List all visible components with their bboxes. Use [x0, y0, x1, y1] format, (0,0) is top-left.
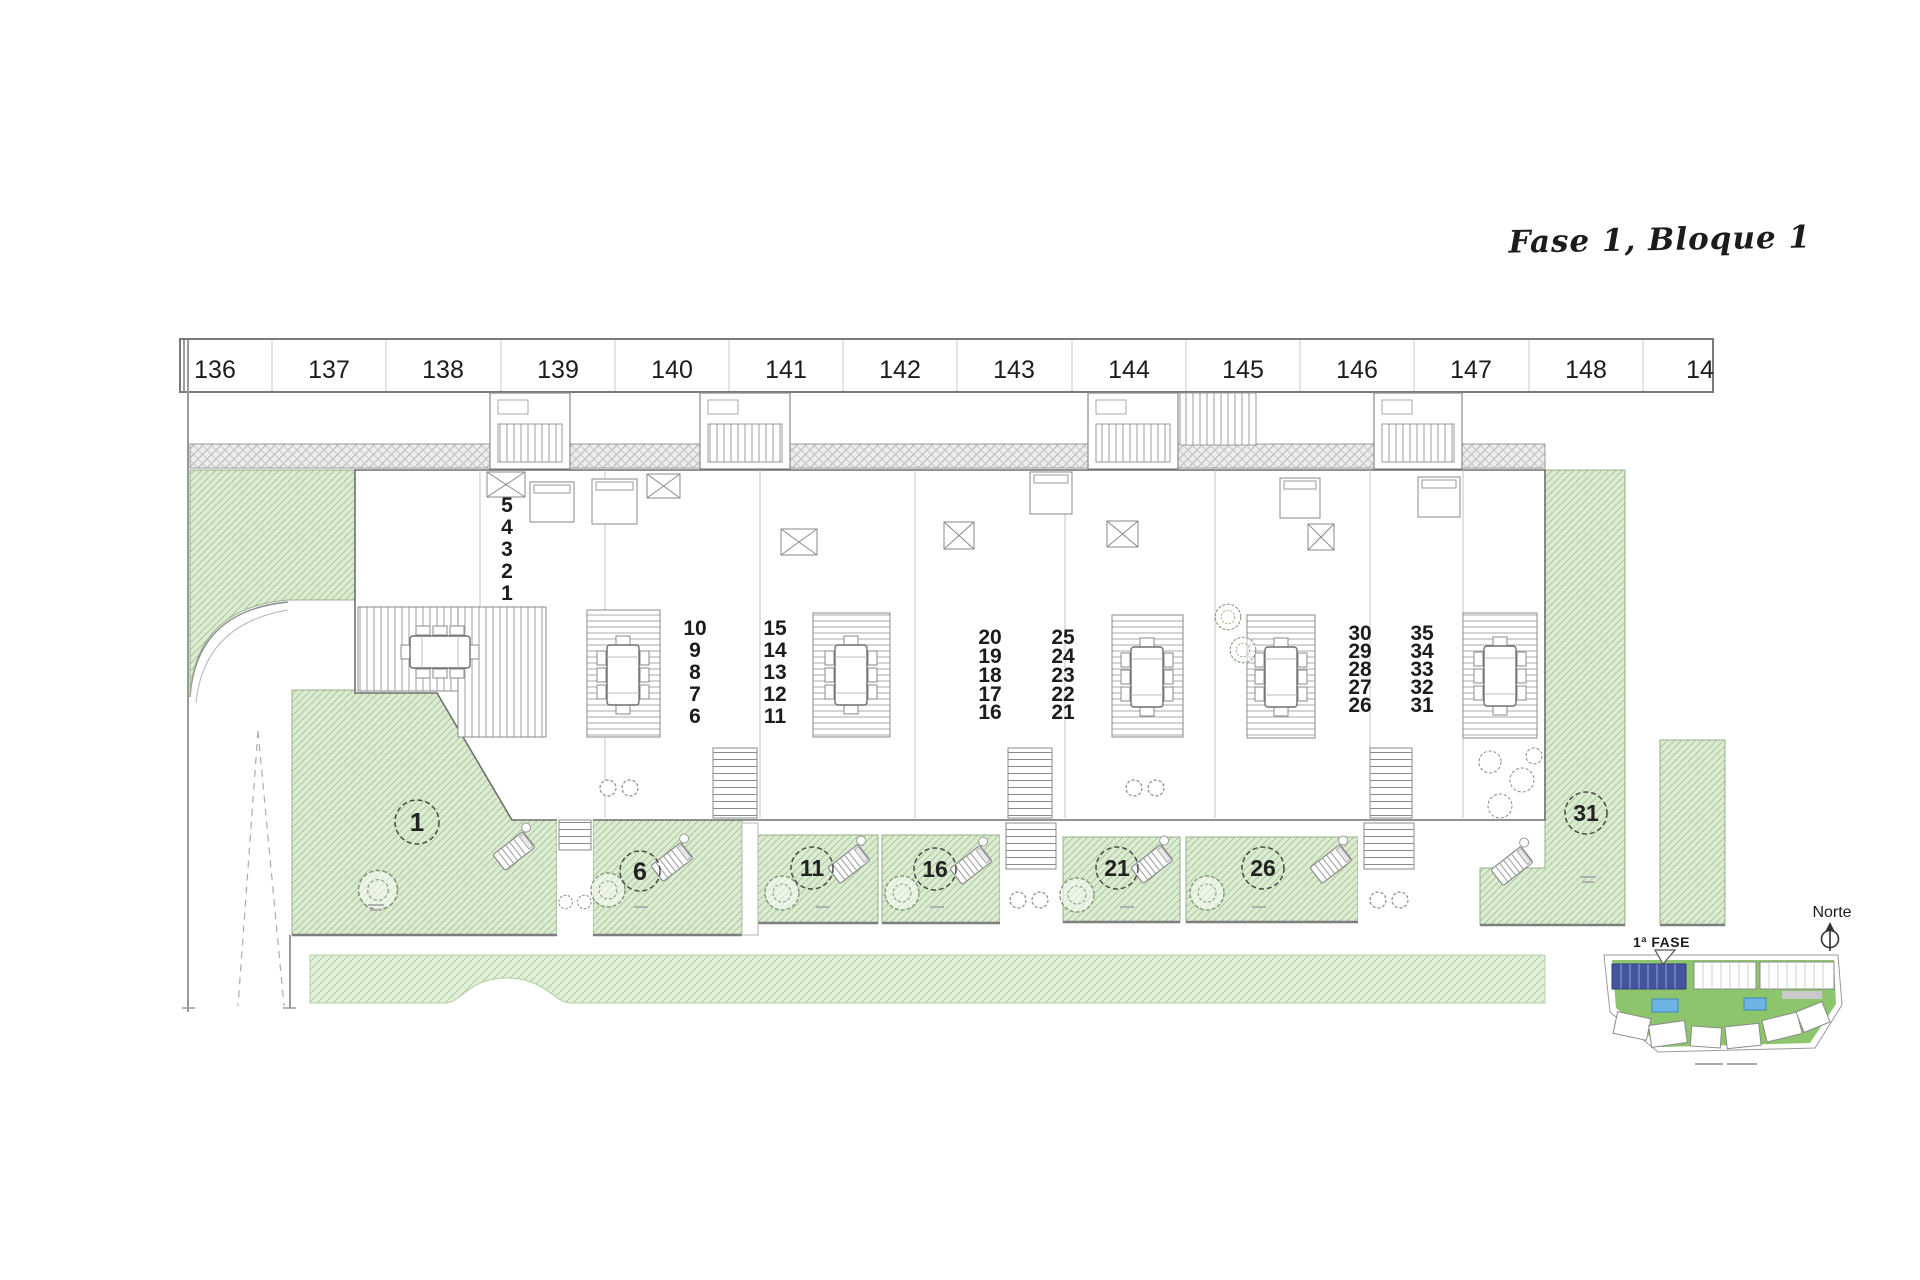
- page-title: Fase 1, Bloque 1: [1507, 219, 1811, 260]
- unit-number: 7: [689, 683, 701, 706]
- path-steps: [1006, 823, 1056, 869]
- tree-icon: [885, 876, 919, 910]
- unit-number: 2: [501, 560, 513, 583]
- parking-space-label: 143: [993, 356, 1035, 384]
- minimap-walkway: [1782, 991, 1822, 999]
- garden-number: 11: [800, 855, 825, 881]
- parking-space-label: 136: [194, 356, 236, 384]
- stair-flight: [713, 748, 757, 818]
- roof-strip: [190, 393, 1545, 469]
- phase-label: 1ª FASE: [1633, 934, 1690, 950]
- parking-row: 136 137 138 139 140 141 142 143 144 145 …: [180, 339, 1714, 392]
- unit-number: 13: [763, 661, 786, 684]
- tree-icon: [591, 873, 625, 907]
- mini-site-map: 1ª FASE: [1604, 934, 1842, 1065]
- path-6-11: [742, 823, 758, 935]
- unit-number: 8: [689, 661, 701, 684]
- unit-number: 1: [501, 582, 513, 605]
- unit-stack-1-5: 5 4 3 2 1: [501, 494, 513, 605]
- parking-space-label: 144: [1108, 356, 1150, 384]
- unit-number: 9: [689, 639, 701, 662]
- minimap-caption-marks: [1695, 1063, 1757, 1065]
- north-arrow-head: [1826, 922, 1835, 931]
- louver-roof-band: [1180, 393, 1256, 445]
- parking-space-label: 139: [537, 356, 579, 384]
- unit-stack-21-25: 25 24 23 22 21: [1051, 626, 1075, 724]
- parking-space-label: 147: [1450, 356, 1492, 384]
- parking-space-label: 137: [308, 356, 350, 384]
- stair-tower: [490, 393, 570, 469]
- unit-number: 11: [764, 705, 787, 728]
- unit-number: 3: [501, 538, 513, 561]
- minimap-block: [1649, 1021, 1688, 1048]
- garden-number: 1: [410, 807, 424, 837]
- bed: [1030, 472, 1072, 514]
- skylight-x-box: [944, 522, 974, 549]
- minimap-block: [1690, 1026, 1721, 1048]
- minimap-buildings-top: [1612, 962, 1834, 989]
- parking-space-label: 145: [1222, 356, 1264, 384]
- unit-number: 4: [501, 516, 513, 539]
- stair-tower: [1374, 393, 1462, 469]
- ramp-dashed-lines: [238, 731, 284, 1006]
- parking-space-label-clipped: 14: [1686, 356, 1714, 384]
- path-steps: [1364, 823, 1414, 869]
- site-plan: 136 137 138 139 140 141 142 143 144 145 …: [0, 0, 1920, 1280]
- north-indicator: Norte: [1812, 904, 1851, 951]
- roads: [182, 340, 296, 1012]
- unit-number: 6: [689, 705, 701, 728]
- unit-number: 15: [763, 617, 787, 640]
- unit-stack-11-15: 15 14 13 12 11: [763, 617, 787, 728]
- parking-space-label: 148: [1565, 356, 1607, 384]
- tree-icon: [1190, 876, 1224, 910]
- tree-icon: [1060, 878, 1094, 912]
- bed: [1280, 478, 1320, 518]
- garden-number: 26: [1250, 855, 1276, 881]
- skylight-x-box: [647, 474, 680, 498]
- bed: [530, 482, 574, 522]
- garden-number: 16: [922, 856, 948, 882]
- unit-number: 16: [978, 701, 1001, 724]
- path-steps: [559, 820, 591, 850]
- landscape-strip: [310, 955, 1545, 1003]
- parking-space-label: 140: [651, 356, 693, 384]
- roof-hatch-band: [190, 444, 1545, 468]
- minimap-pool: [1744, 998, 1766, 1010]
- floor-plan-page: 136 137 138 139 140 141 142 143 144 145 …: [0, 0, 1920, 1280]
- unit-number: 21: [1051, 701, 1075, 724]
- tree-icon: [1230, 637, 1256, 663]
- skylight-x-box: [781, 529, 817, 555]
- parking-space-label: 146: [1336, 356, 1378, 384]
- minimap-pool: [1652, 999, 1678, 1012]
- unit-number: 5: [501, 494, 513, 517]
- parking-space-label: 141: [765, 356, 807, 384]
- stair-flight: [1370, 748, 1412, 818]
- stair-tower: [700, 393, 790, 469]
- garden-northwest: [190, 470, 357, 695]
- unit-number: 26: [1348, 694, 1371, 717]
- parking-space-label: 138: [422, 356, 464, 384]
- garden-number: 6: [633, 858, 647, 886]
- deck-terrace: [458, 607, 546, 737]
- unit-stack-31-35: 35 34 33 32 31: [1410, 622, 1434, 717]
- tree-icon: [765, 876, 799, 910]
- unit-number: 10: [683, 617, 706, 640]
- unit-number: 31: [1410, 694, 1434, 717]
- parking-space-label: 142: [879, 356, 921, 384]
- garden-number: 31: [1573, 800, 1599, 826]
- north-label: Norte: [1812, 904, 1851, 921]
- tree-icon: [1215, 604, 1241, 630]
- stair-tower: [1088, 393, 1178, 469]
- minimap-block: [1725, 1023, 1761, 1048]
- unit-number: 14: [763, 639, 787, 662]
- stair-flight: [1008, 748, 1052, 818]
- skylight-x-box: [1107, 521, 1138, 547]
- unit-stack-16-20: 20 19 18 17 16: [978, 626, 1002, 724]
- garden-number: 21: [1104, 855, 1130, 881]
- tree-icon: [358, 870, 397, 909]
- garden-east-column: [1660, 740, 1725, 925]
- unit-stack-26-30: 30 29 28 27 26: [1348, 622, 1372, 717]
- skylight-x-box: [1308, 524, 1334, 550]
- bed: [1418, 477, 1460, 517]
- bed: [592, 479, 637, 524]
- unit-number: 12: [763, 683, 786, 706]
